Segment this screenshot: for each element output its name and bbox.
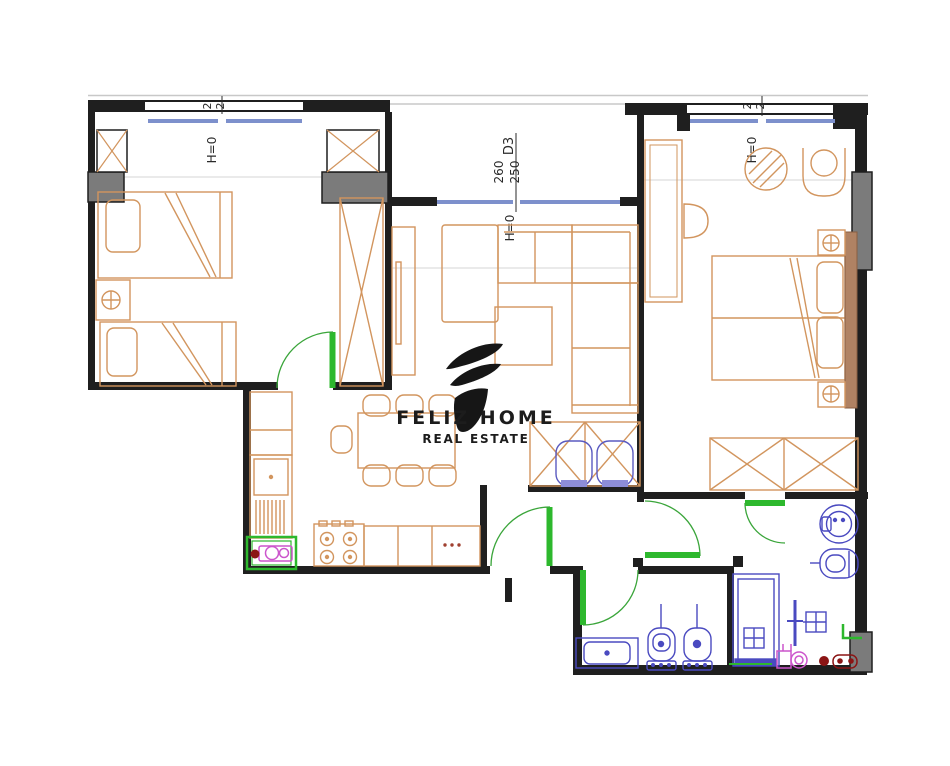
toilet — [647, 604, 676, 670]
ensuite-toilet — [810, 549, 858, 578]
window-right-sill-a — [690, 119, 758, 123]
door-bedroom2 — [645, 501, 700, 558]
nightstand-top — [818, 230, 845, 255]
bathroom-main — [576, 604, 712, 670]
round-table — [745, 148, 787, 190]
tv-unit — [392, 227, 415, 375]
nightstand-bottom — [818, 382, 845, 407]
single-bed-2 — [100, 322, 236, 386]
logo-title: FELIZ HOME — [396, 407, 555, 429]
round-washbasin — [820, 505, 858, 543]
armchair — [803, 148, 845, 196]
dining-chair — [331, 426, 352, 453]
bedroom1-furniture — [96, 192, 383, 386]
window-right-pane-a-label: 2 — [741, 103, 754, 110]
door-bathroom — [580, 570, 638, 625]
door-entry — [491, 507, 553, 566]
desk-bedroom2 — [645, 140, 682, 302]
window-center-sill-a — [437, 200, 513, 204]
kitchen-sink-cabinet — [247, 537, 296, 569]
window-left-pane-b-label: 2 — [214, 103, 227, 110]
laundry-fixtures — [777, 644, 857, 668]
coffee-table — [495, 307, 552, 365]
doors — [277, 332, 785, 625]
floor-plan-drawing: 2 2 H=0 D3 260 250 H=0 2 2 H=0 — [0, 0, 950, 766]
door-bedroom1 — [277, 332, 336, 388]
window-center-sill-label: H=0 — [503, 215, 517, 242]
walls — [88, 100, 868, 675]
wardrobe-bedroom1 — [340, 198, 383, 386]
sink-valve-dot — [251, 550, 260, 559]
wardrobe-bedroom2 — [710, 438, 858, 490]
door-code-label: D3 — [502, 137, 517, 155]
corner-sofa — [442, 225, 638, 413]
logo-subtitle: REAL ESTATE — [422, 432, 529, 446]
dressing-desk — [530, 422, 640, 486]
living-room-furniture — [392, 225, 640, 487]
window-center-sill-b — [520, 200, 620, 204]
window-left-sill-b — [226, 119, 302, 123]
shower-column — [787, 600, 826, 646]
bidet — [683, 604, 712, 670]
valve-dot — [819, 656, 829, 666]
bathroom-sink-counter — [576, 638, 638, 668]
floor-plan-canvas: 2 2 H=0 D3 260 250 H=0 2 2 H=0 — [0, 0, 950, 766]
window-left-pane-a-label: 2 — [201, 103, 214, 110]
desk-chair-a — [556, 441, 592, 487]
desk-chair-b — [597, 441, 633, 487]
window-right-sill-b — [766, 119, 835, 123]
single-bed-1 — [98, 192, 232, 278]
stove — [314, 521, 364, 566]
bedroom2-furniture — [645, 140, 858, 490]
window-right-pane-b-label: 2 — [754, 103, 767, 110]
kitchen-tall-unit — [250, 392, 292, 538]
ensuite-bathroom — [729, 505, 862, 668]
window-left-sill-a — [148, 119, 218, 123]
door-ensuite — [745, 500, 785, 543]
desk-chair-bedroom2 — [684, 204, 708, 238]
double-bed — [712, 256, 845, 380]
window-left-sill-label: H=0 — [205, 137, 219, 164]
nightstand-lamp — [96, 280, 130, 320]
hatched-piers — [97, 130, 379, 172]
headboard-panel — [845, 232, 857, 408]
shower-cabin — [733, 574, 779, 666]
door-dim-b-label: 250 — [508, 161, 522, 184]
kitchen-counter — [364, 526, 480, 566]
logo: FELIZ HOME REAL ESTATE — [396, 344, 555, 446]
door-dim-a-label: 260 — [492, 161, 506, 184]
